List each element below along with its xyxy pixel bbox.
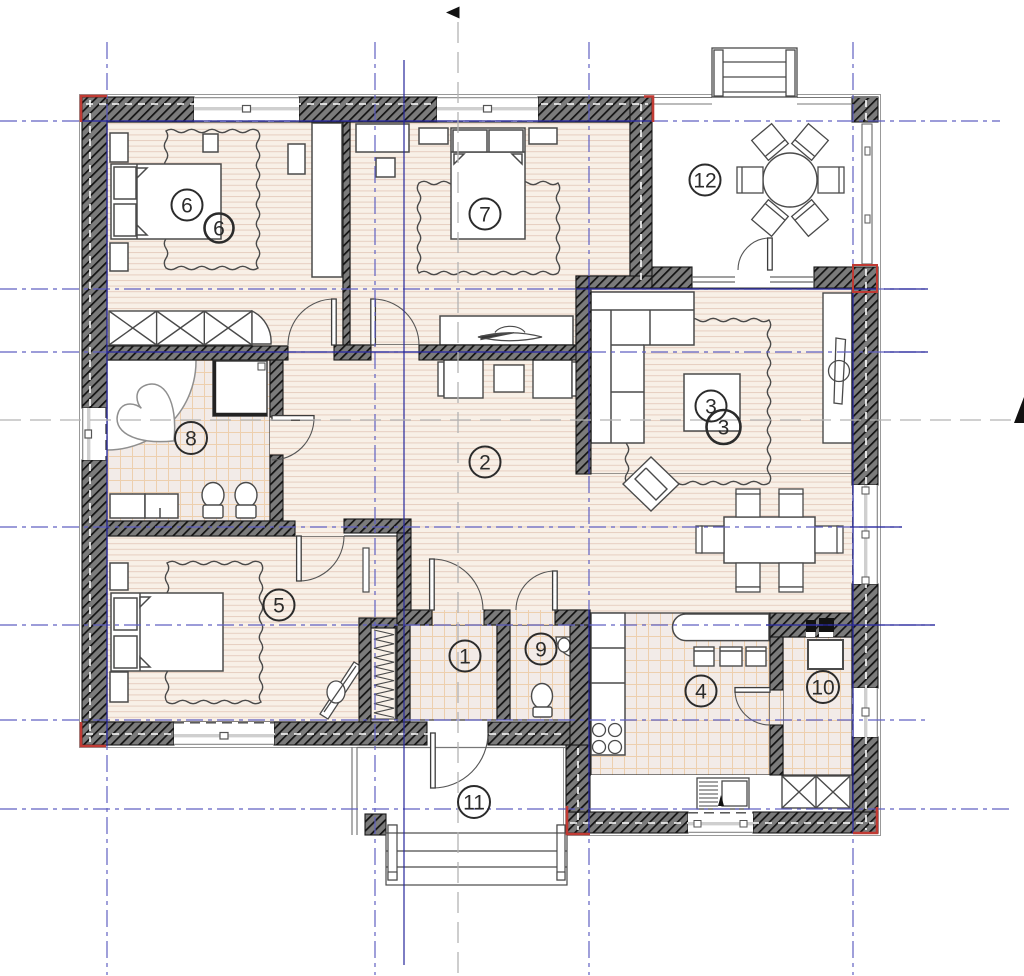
svg-text:12: 12 [693,170,716,193]
svg-text:6: 6 [213,218,225,241]
svg-text:5: 5 [273,595,285,618]
svg-text:10: 10 [811,677,834,700]
svg-text:7: 7 [479,204,491,227]
svg-text:8: 8 [185,428,197,451]
svg-text:9: 9 [535,639,547,662]
svg-text:1: 1 [459,646,471,669]
svg-text:3: 3 [718,417,730,440]
svg-text:4: 4 [695,681,707,704]
svg-text:2: 2 [479,452,491,475]
svg-text:11: 11 [463,792,485,815]
svg-text:6: 6 [181,195,193,218]
